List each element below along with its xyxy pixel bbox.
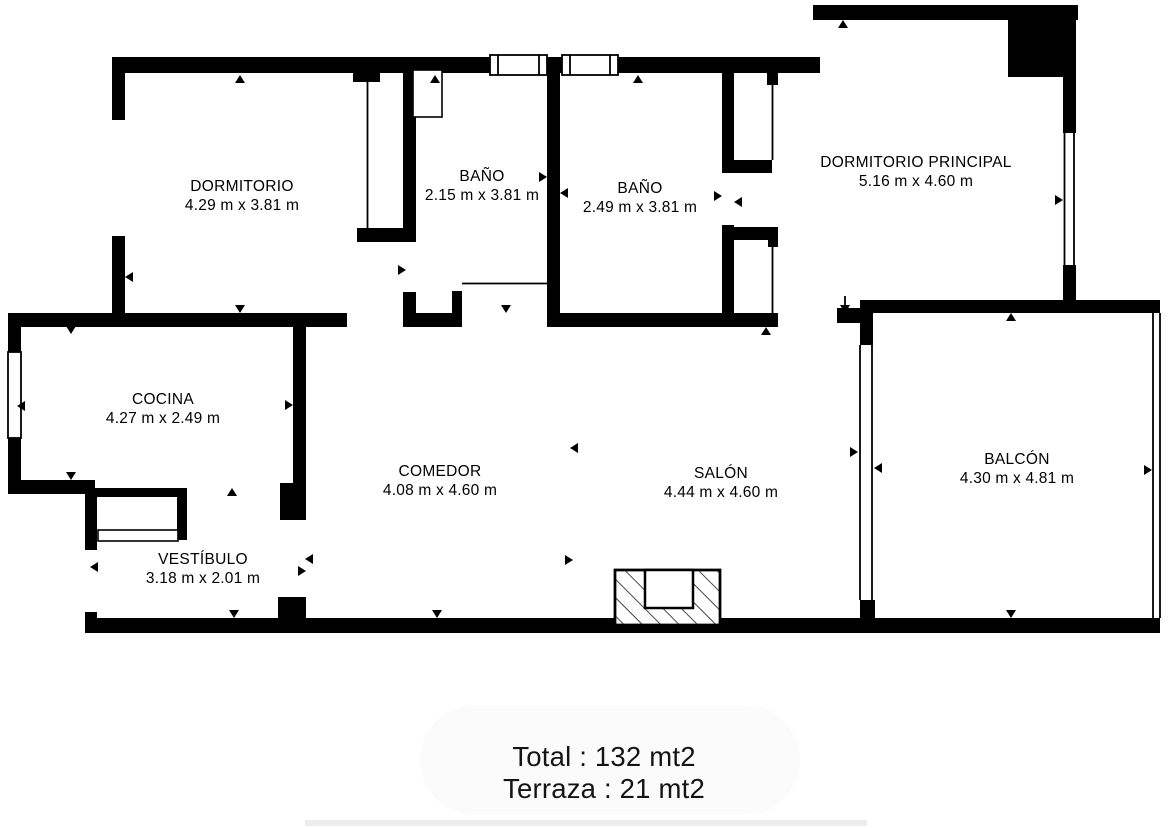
shower-fixture xyxy=(413,70,442,117)
room-dims: 4.29 m x 3.81 m xyxy=(185,196,299,215)
room-name: BALCÓN xyxy=(960,450,1074,469)
room-label-balcon: BALCÓN 4.30 m x 4.81 m xyxy=(960,450,1074,488)
room-label-salon: SALÓN 4.44 m x 4.60 m xyxy=(664,464,778,502)
terraza-area-text: Terraza : 21 mt2 xyxy=(503,773,705,805)
window-icons xyxy=(8,55,618,438)
room-dims: 2.15 m x 3.81 m xyxy=(425,186,539,205)
room-name: BAÑO xyxy=(425,167,539,186)
room-name: DORMITORIO xyxy=(185,177,299,196)
room-name: BAÑO xyxy=(583,179,697,198)
room-dims: 2.49 m x 3.81 m xyxy=(583,198,697,217)
room-label-comedor: COMEDOR 4.08 m x 4.60 m xyxy=(383,462,497,500)
room-name: DORMITORIO PRINCIPAL xyxy=(820,153,1011,172)
room-name: COMEDOR xyxy=(383,462,497,481)
room-dims: 5.16 m x 4.60 m xyxy=(820,172,1011,191)
room-dims: 4.30 m x 4.81 m xyxy=(960,469,1074,488)
closet-slider xyxy=(98,530,178,541)
walls xyxy=(8,5,1160,633)
room-dims: 4.44 m x 4.60 m xyxy=(664,483,778,502)
room-dims: 4.27 m x 2.49 m xyxy=(106,409,220,428)
room-name: VESTÍBULO xyxy=(146,550,260,569)
total-area-text: Total : 132 mt2 xyxy=(512,741,695,773)
room-dims: 4.08 m x 4.60 m xyxy=(383,481,497,500)
room-dims: 3.18 m x 2.01 m xyxy=(146,569,260,588)
room-label-dormitorio-principal: DORMITORIO PRINCIPAL 5.16 m x 4.60 m xyxy=(820,153,1011,191)
room-label-bano-1: BAÑO 2.15 m x 3.81 m xyxy=(425,167,539,205)
room-label-vestibulo: VESTÍBULO 3.18 m x 2.01 m xyxy=(146,550,260,588)
room-name: COCINA xyxy=(106,390,220,409)
fireplace-fixture xyxy=(615,570,720,625)
room-label-dormitorio: DORMITORIO 4.29 m x 3.81 m xyxy=(185,177,299,215)
room-label-cocina: COCINA 4.27 m x 2.49 m xyxy=(106,390,220,428)
room-name: SALÓN xyxy=(664,464,778,483)
floor-plan-page: DORMITORIO 4.29 m x 3.81 m BAÑO 2.15 m x… xyxy=(0,0,1168,828)
room-label-bano-2: BAÑO 2.49 m x 3.81 m xyxy=(583,179,697,217)
